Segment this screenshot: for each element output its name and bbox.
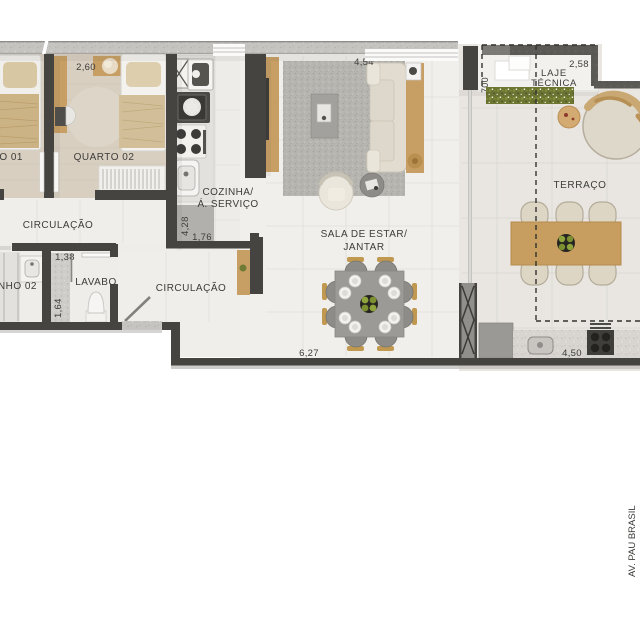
svg-text:2,58: 2,58 — [569, 59, 589, 70]
svg-text:QUARTO 02: QUARTO 02 — [74, 152, 135, 163]
svg-text:Á. SERVIÇO: Á. SERVIÇO — [197, 197, 258, 210]
svg-text:COZINHA/: COZINHA/ — [203, 187, 254, 198]
svg-text:6,27: 6,27 — [299, 348, 319, 359]
svg-text:2,60: 2,60 — [76, 62, 96, 73]
svg-text:TO 01: TO 01 — [0, 152, 23, 163]
svg-text:1,64: 1,64 — [53, 298, 64, 318]
svg-text:CIRCULAÇÃO: CIRCULAÇÃO — [23, 218, 94, 231]
svg-text:TERRAÇO: TERRAÇO — [553, 180, 606, 191]
svg-text:JANTAR: JANTAR — [343, 242, 384, 253]
svg-text:CIRCULAÇÃO: CIRCULAÇÃO — [156, 281, 227, 294]
svg-text:SALA DE ESTAR/: SALA DE ESTAR/ — [321, 229, 408, 240]
svg-text:NHO 02: NHO 02 — [0, 281, 37, 292]
svg-text:4,50: 4,50 — [562, 348, 582, 359]
svg-text:LAVABO: LAVABO — [75, 277, 117, 288]
svg-text:AV. PAU BRASIL: AV. PAU BRASIL — [627, 505, 638, 577]
